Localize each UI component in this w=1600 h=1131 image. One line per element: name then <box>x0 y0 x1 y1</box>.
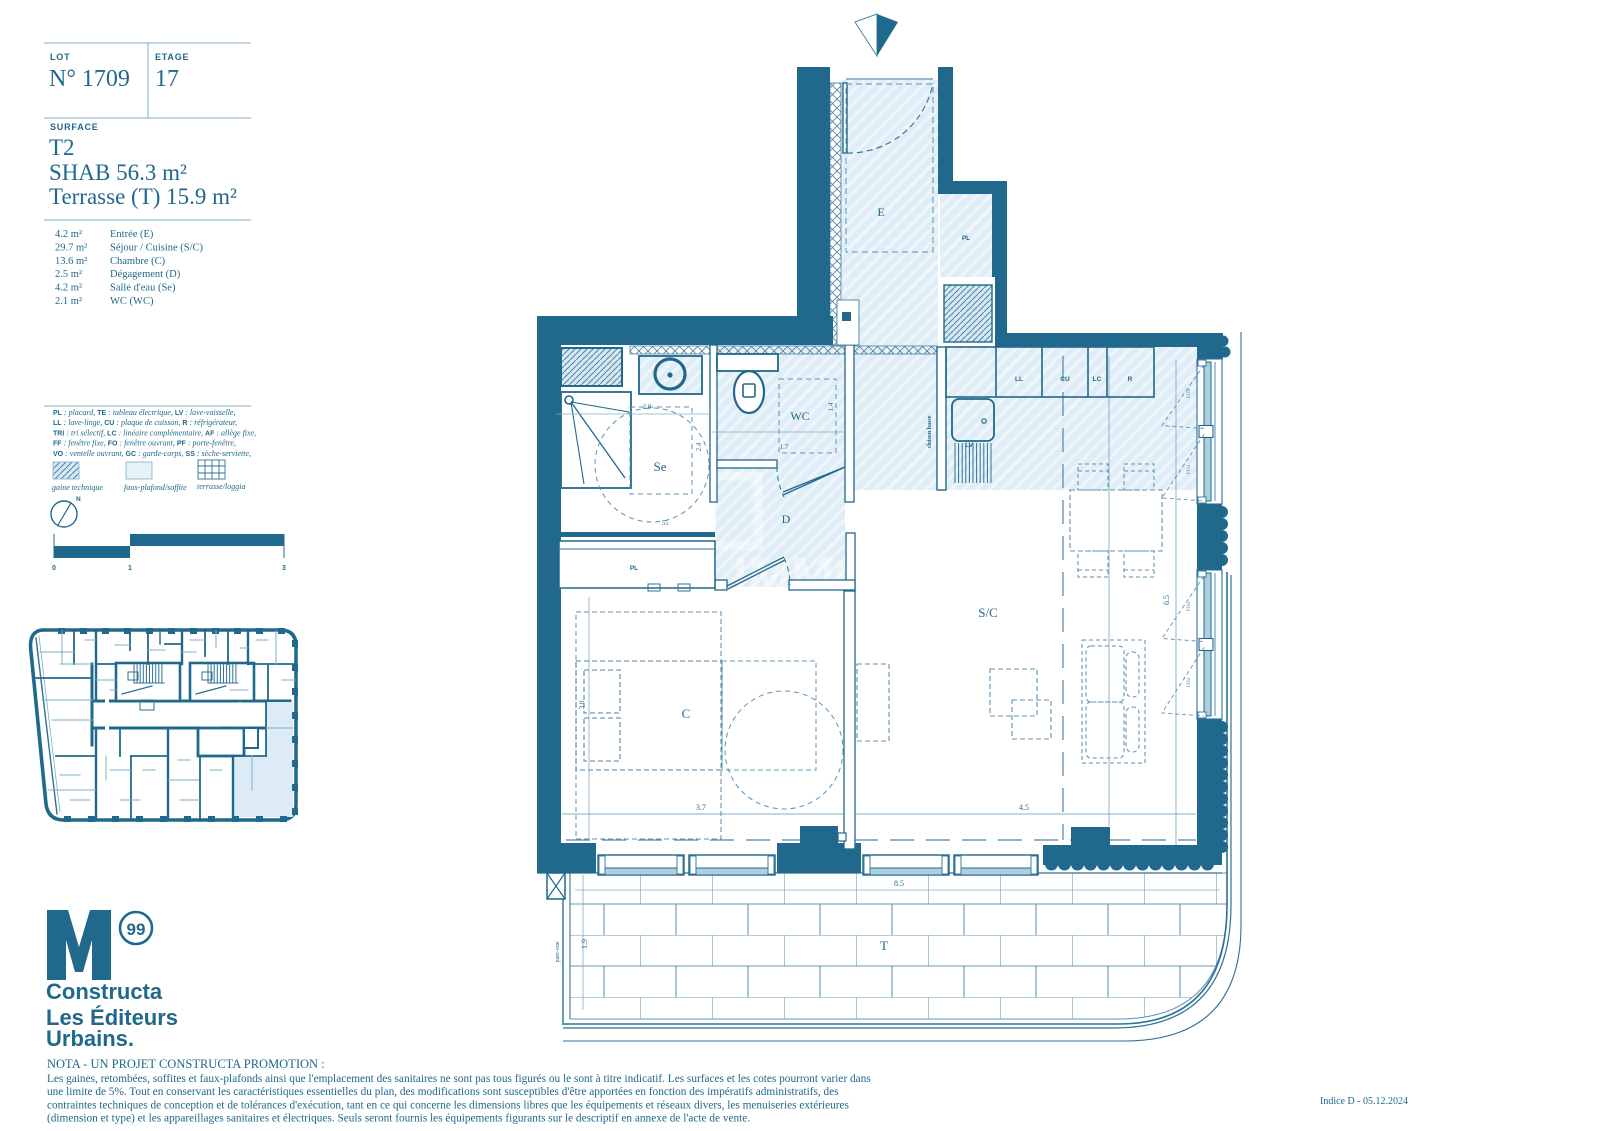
svg-text:une limite de 5%. Tout en cons: une limite de 5%. Tout en conservant les… <box>47 1086 839 1098</box>
svg-text:SURFACE: SURFACE <box>50 122 99 132</box>
svg-text:WC (WC): WC (WC) <box>110 296 154 307</box>
svg-text:3.0: 3.0 <box>578 700 586 709</box>
svg-text:1.4: 1.4 <box>827 402 835 411</box>
svg-text:PL: PL <box>630 565 638 572</box>
svg-text:NOTA - UN PROJET CONSTRUCTA PR: NOTA - UN PROJET CONSTRUCTA PROMOTION : <box>47 1057 325 1071</box>
svg-text:1: 1 <box>128 565 132 572</box>
svg-text:S/C: S/C <box>978 605 998 620</box>
svg-text:Chambre (C): Chambre (C) <box>110 256 166 267</box>
svg-text:Se: Se <box>654 459 667 474</box>
svg-text:cloison basse: cloison basse <box>927 415 933 448</box>
svg-text:Indice D - 05.12.2024: Indice D - 05.12.2024 <box>1320 1096 1408 1107</box>
svg-text:3: 3 <box>282 565 286 572</box>
svg-text:FOu: FOu <box>1187 602 1192 611</box>
svg-text:8.5: 8.5 <box>894 879 904 888</box>
svg-text:29.7 m²: 29.7 m² <box>55 242 87 253</box>
svg-text:1.9: 1.9 <box>580 939 589 949</box>
svg-text:T: T <box>880 938 888 953</box>
svg-text:T2: T2 <box>49 135 75 160</box>
svg-text:4.2 m²: 4.2 m² <box>55 283 82 294</box>
svg-text:Urbains.: Urbains. <box>46 1026 134 1051</box>
svg-text:VO : ventelle ouvrant, GC : g: VO : ventelle ouvrant, GC : garde-corps,… <box>53 449 251 458</box>
svg-text:gaine technique: gaine technique <box>52 483 103 492</box>
svg-text:0: 0 <box>52 565 56 572</box>
svg-text:R: R <box>1128 376 1133 383</box>
svg-text:3.7: 3.7 <box>696 803 706 812</box>
svg-text:FF : fenêtre fixe, FO : fenêt: FF : fenêtre fixe, FO : fenêtre ouvrant,… <box>53 439 236 448</box>
svg-text:LOT: LOT <box>50 52 70 62</box>
svg-text:2.0: 2.0 <box>643 403 652 411</box>
svg-text:4.5: 4.5 <box>1019 803 1029 812</box>
svg-text:C: C <box>682 706 691 721</box>
svg-text:2.1 m²: 2.1 m² <box>55 296 82 307</box>
svg-text:2.4: 2.4 <box>695 442 703 451</box>
svg-text:LC: LC <box>1093 376 1102 383</box>
svg-text:Terrasse (T) 15.9 m²: Terrasse (T) 15.9 m² <box>49 184 237 209</box>
svg-text:1.7: 1.7 <box>780 443 789 451</box>
svg-text:N° 1709: N° 1709 <box>49 66 130 92</box>
svg-text:13.6 m²: 13.6 m² <box>55 256 87 267</box>
svg-text:PL: PL <box>962 235 970 242</box>
svg-text:PL : placard, TE : tableau él: PL : placard, TE : tableau électrique, L… <box>53 408 235 417</box>
svg-text:contraintes techniques de conc: contraintes techniques de conception et … <box>47 1099 849 1111</box>
svg-text:6.5: 6.5 <box>1162 595 1171 605</box>
svg-text:FOu: FOu <box>1187 389 1192 398</box>
svg-text:Les gaines, retombées, soffite: Les gaines, retombées, soffites et faux-… <box>47 1073 871 1085</box>
svg-text:17: 17 <box>155 66 179 92</box>
svg-text:WC: WC <box>790 409 809 423</box>
svg-text:4.2 m²: 4.2 m² <box>55 229 82 240</box>
svg-text:faux-plafond/soffite: faux-plafond/soffite <box>124 483 187 492</box>
svg-text:99: 99 <box>127 920 146 939</box>
svg-text:Séjour / Cuisine (S/C): Séjour / Cuisine (S/C) <box>110 242 204 253</box>
svg-text:E: E <box>877 205 884 219</box>
svg-text:(dimension et type) et les app: (dimension et type) et les appareillages… <box>47 1113 750 1125</box>
svg-text:LL : lave-linge, CU : plaque: LL : lave-linge, CU : plaque de cuisson,… <box>53 418 237 427</box>
svg-text:Entrée (E): Entrée (E) <box>110 229 154 240</box>
svg-text:N: N <box>76 496 81 503</box>
svg-text:FOu: FOu <box>1187 465 1192 474</box>
svg-text:terrasse/loggia: terrasse/loggia <box>197 482 245 491</box>
svg-text:55: 55 <box>662 519 670 527</box>
svg-text:ETAGE: ETAGE <box>155 52 189 62</box>
svg-text:LL: LL <box>1015 376 1023 383</box>
svg-text:SHAB 56.3 m²: SHAB 56.3 m² <box>49 160 187 185</box>
svg-text:D: D <box>782 512 791 526</box>
svg-text:pare-vue: pare-vue <box>555 941 561 962</box>
svg-text:Salle d'eau (Se): Salle d'eau (Se) <box>110 283 176 294</box>
svg-text:Dégagement (D): Dégagement (D) <box>110 269 181 280</box>
svg-text:TRI : tri sélectif, LC : liné: TRI : tri sélectif, LC : linéaire complé… <box>53 428 256 437</box>
svg-text:2.5 m²: 2.5 m² <box>55 269 82 280</box>
svg-text:LV: LV <box>965 442 973 449</box>
svg-text:CU: CU <box>1060 376 1070 383</box>
svg-text:Constructa: Constructa <box>46 979 163 1004</box>
svg-text:FOu: FOu <box>1187 678 1192 687</box>
